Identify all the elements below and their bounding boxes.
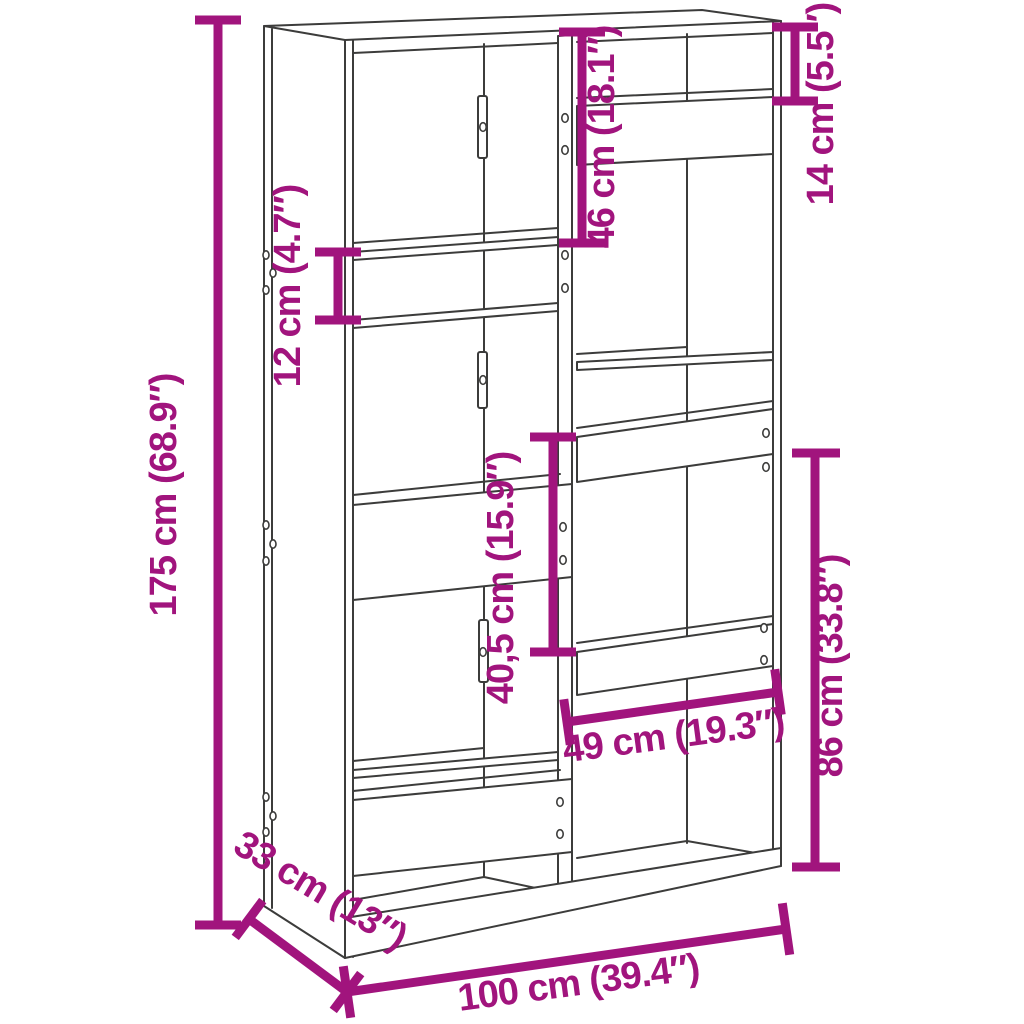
diagram-page: 175 cm (68.9″) 46 cm (18.1″) 14 cm (5.5″… (0, 0, 1024, 1024)
dimension-height-label: 175 cm (68.9″) (143, 374, 185, 617)
dimension-bottom-right-height-label: 86 cm (33.8″) (809, 555, 851, 778)
dimension-top-right-slot: 14 cm (5.5″) (772, 3, 842, 206)
dimension-height: 175 cm (68.9″) (143, 20, 241, 925)
dimension-top-right-slot-label: 14 cm (5.5″) (800, 3, 842, 206)
dimension-left-slot: 12 cm (4.7″) (267, 185, 361, 388)
dimension-top-left-opening-label: 46 cm (18.1″) (581, 26, 623, 249)
dimension-left-slot-label: 12 cm (4.7″) (267, 185, 309, 388)
dimension-bottom-right-height: 86 cm (33.8″) (792, 453, 851, 867)
diagram-canvas: 175 cm (68.9″) 46 cm (18.1″) 14 cm (5.5″… (0, 0, 1024, 1024)
bookcase-drawing (263, 10, 781, 958)
dimension-middle-right-opening-label: 40,5 cm (15.9″) (480, 452, 522, 704)
